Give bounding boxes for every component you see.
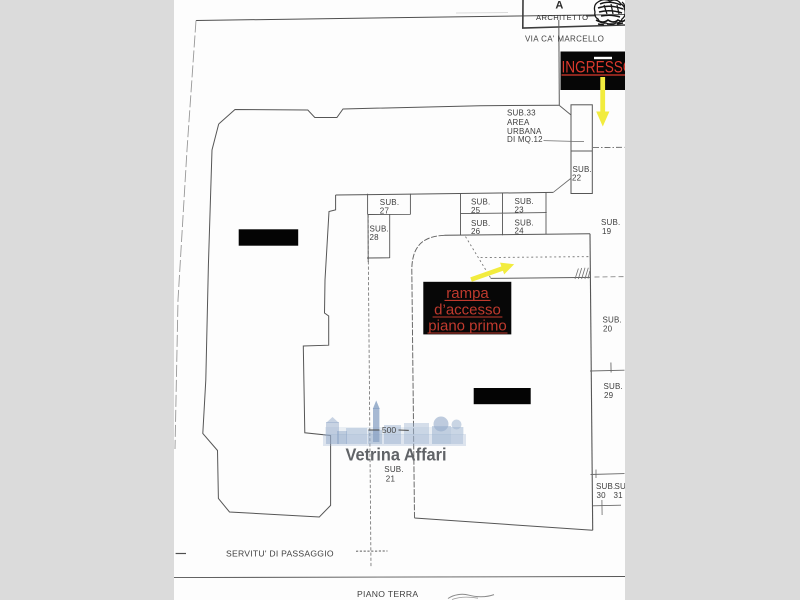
svg-text:A: A bbox=[555, 0, 563, 11]
svg-text:22: 22 bbox=[572, 173, 582, 182]
svg-text:21: 21 bbox=[386, 475, 396, 484]
svg-text:VIA CA' MARCELLO: VIA CA' MARCELLO bbox=[525, 35, 604, 44]
svg-text:AREA: AREA bbox=[507, 118, 530, 127]
svg-text:28: 28 bbox=[370, 233, 380, 242]
svg-text:d’accesso: d’accesso bbox=[434, 302, 501, 319]
svg-text:DI MQ.12: DI MQ.12 bbox=[507, 135, 543, 144]
svg-text:26: 26 bbox=[471, 227, 481, 236]
svg-text:30: 30 bbox=[597, 491, 607, 500]
svg-text:PIANO TERRA: PIANO TERRA bbox=[357, 589, 418, 599]
svg-text:INGRESSO: INGRESSO bbox=[562, 59, 634, 77]
svg-text:SUB.: SUB. bbox=[604, 382, 623, 391]
svg-text:Vetrina Affari: Vetrina Affari bbox=[346, 445, 447, 465]
svg-text:500: 500 bbox=[382, 425, 397, 435]
svg-text:SUB.: SUB. bbox=[601, 218, 620, 227]
svg-text:31: 31 bbox=[614, 491, 624, 500]
svg-text:rampa: rampa bbox=[446, 285, 489, 302]
svg-text:25: 25 bbox=[471, 206, 481, 215]
svg-text:24: 24 bbox=[515, 227, 525, 236]
svg-text:piano primo: piano primo bbox=[428, 318, 506, 335]
svg-text:23: 23 bbox=[515, 206, 525, 215]
svg-text:SUB.33: SUB.33 bbox=[507, 109, 536, 118]
svg-text:SUB.: SUB. bbox=[603, 316, 622, 325]
svg-text:19: 19 bbox=[602, 227, 612, 236]
svg-text:20: 20 bbox=[603, 325, 613, 334]
svg-text:ARCHITETTO: ARCHITETTO bbox=[536, 13, 588, 22]
svg-text:SUB.: SUB. bbox=[384, 465, 403, 474]
svg-text:SERVITU' DI PASSAGGIO: SERVITU' DI PASSAGGIO bbox=[226, 549, 334, 559]
svg-text:29: 29 bbox=[604, 391, 614, 400]
svg-text:27: 27 bbox=[380, 206, 390, 215]
